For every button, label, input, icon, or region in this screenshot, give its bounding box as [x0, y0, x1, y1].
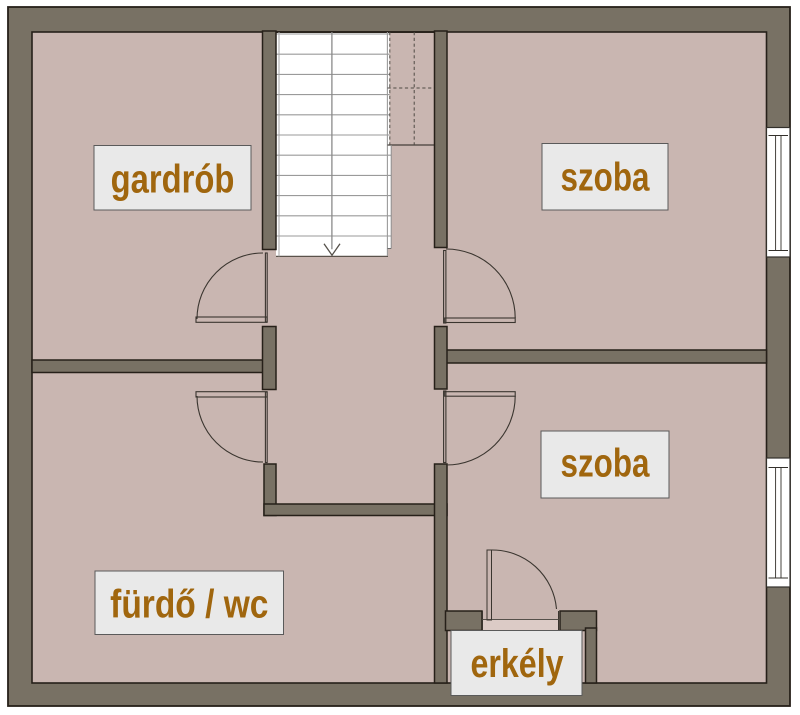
- svg-text:gardrób: gardrób: [111, 157, 235, 202]
- svg-text:szoba: szoba: [561, 440, 651, 486]
- svg-text:erkély: erkély: [470, 641, 563, 686]
- svg-text:fürdő / wc: fürdő / wc: [110, 582, 268, 626]
- svg-text:szoba: szoba: [561, 154, 651, 200]
